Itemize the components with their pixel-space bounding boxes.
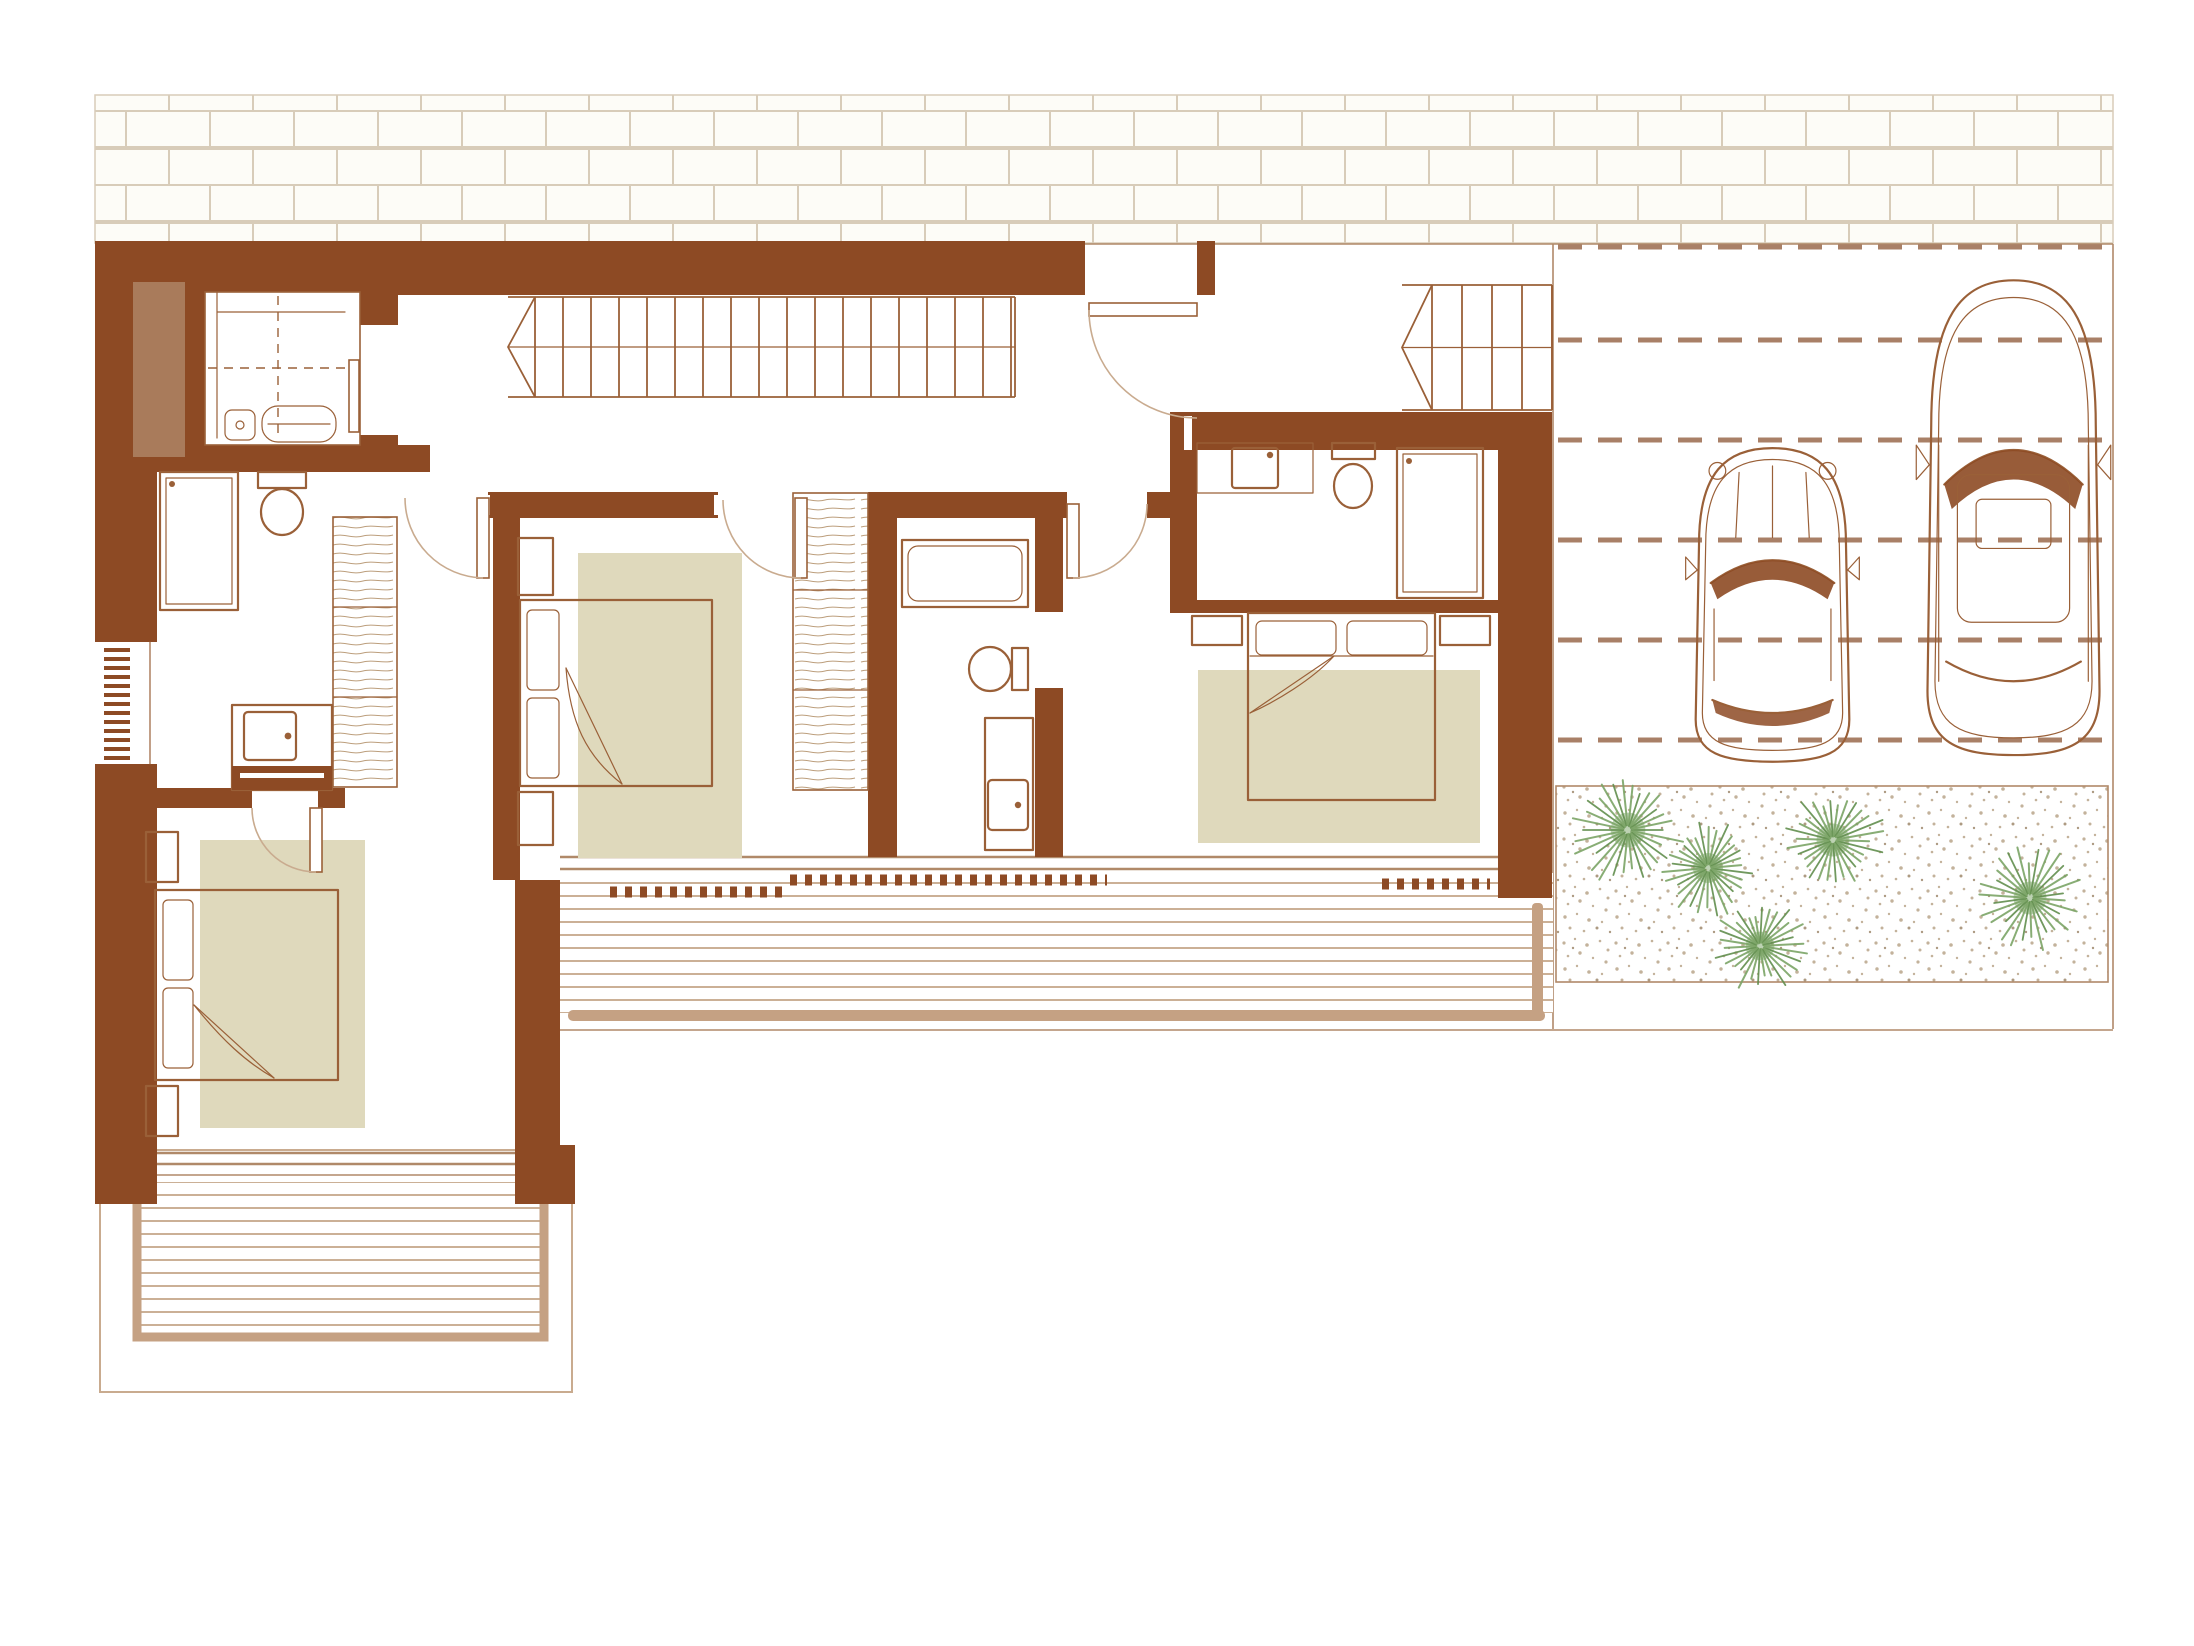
radiator-fin (104, 666, 130, 670)
radiator-fin (104, 657, 130, 661)
radiator-fin (104, 738, 130, 742)
wall-top (95, 241, 1085, 295)
south-deck (560, 857, 1553, 1021)
floor-plan-canvas (0, 0, 2194, 1646)
headboard-wall (1184, 600, 1498, 613)
floor-plan-drawing (0, 0, 2194, 1646)
wall-east (1498, 450, 1552, 898)
radiator-fin (104, 756, 130, 760)
radiator (95, 642, 157, 764)
gravel-garden (1556, 780, 2108, 987)
radiator-fin (104, 693, 130, 697)
door-leaf-bedroom-middle-east (795, 498, 807, 578)
radiator-fin (104, 711, 130, 715)
radiator-fin (104, 684, 130, 688)
door-leaf-suite-corridor (1067, 504, 1079, 578)
elevator-room (133, 282, 398, 457)
rug-bedroom-bottom-left (200, 840, 365, 1128)
wall-bedroom-middle-top (488, 492, 718, 518)
brick-wall-hatch (95, 95, 2113, 243)
door-leaf-bathroom-left (310, 808, 322, 872)
radiator-fin (104, 747, 130, 751)
radiator-fin (104, 648, 130, 652)
elevator-door-leaf (349, 360, 359, 432)
radiator-fin (104, 729, 130, 733)
rug-bedroom-middle (578, 553, 742, 858)
duct-shaft (133, 282, 185, 457)
radiator-fin (104, 675, 130, 679)
wardrobe-corridor (333, 517, 397, 787)
door-leaf-hall-entry (1089, 303, 1197, 316)
radiator-fin (104, 720, 130, 724)
radiator-fin (104, 702, 130, 706)
wall-suite-top (1170, 412, 1552, 450)
door-leaf-bedroom-middle-west (477, 498, 489, 578)
rug-bedroom-right (1198, 670, 1480, 843)
